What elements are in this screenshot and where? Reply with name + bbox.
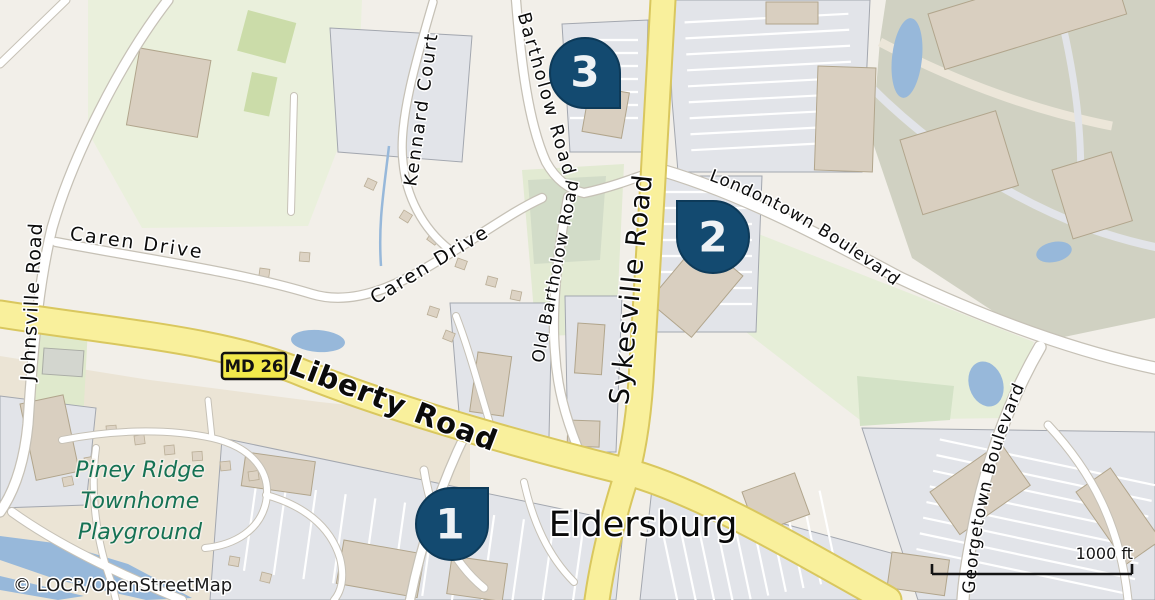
poi-label-piney-ridge: Piney Ridge Townhome Playground — [75, 458, 205, 545]
map-marker-3-label: 3 — [570, 48, 599, 97]
scale-bar-label: 1000 ft — [1076, 544, 1133, 563]
map-canvas[interactable]: Johnsville Road Caren Drive Caren Drive … — [0, 0, 1155, 600]
poi-label-line2: Townhome — [81, 489, 200, 514]
city-label-eldersburg: Eldersburg — [549, 505, 738, 545]
route-shield-md26: MD 26 — [222, 353, 286, 379]
attribution: © LOCR/OpenStreetMap — [13, 575, 232, 596]
route-shield-label: MD 26 — [225, 357, 284, 376]
poi-label-line1: Piney Ridge — [75, 458, 205, 483]
poi-label-line3: Playground — [78, 520, 203, 545]
map-marker-1-label: 1 — [435, 500, 464, 549]
map-marker-2-label: 2 — [698, 213, 727, 262]
